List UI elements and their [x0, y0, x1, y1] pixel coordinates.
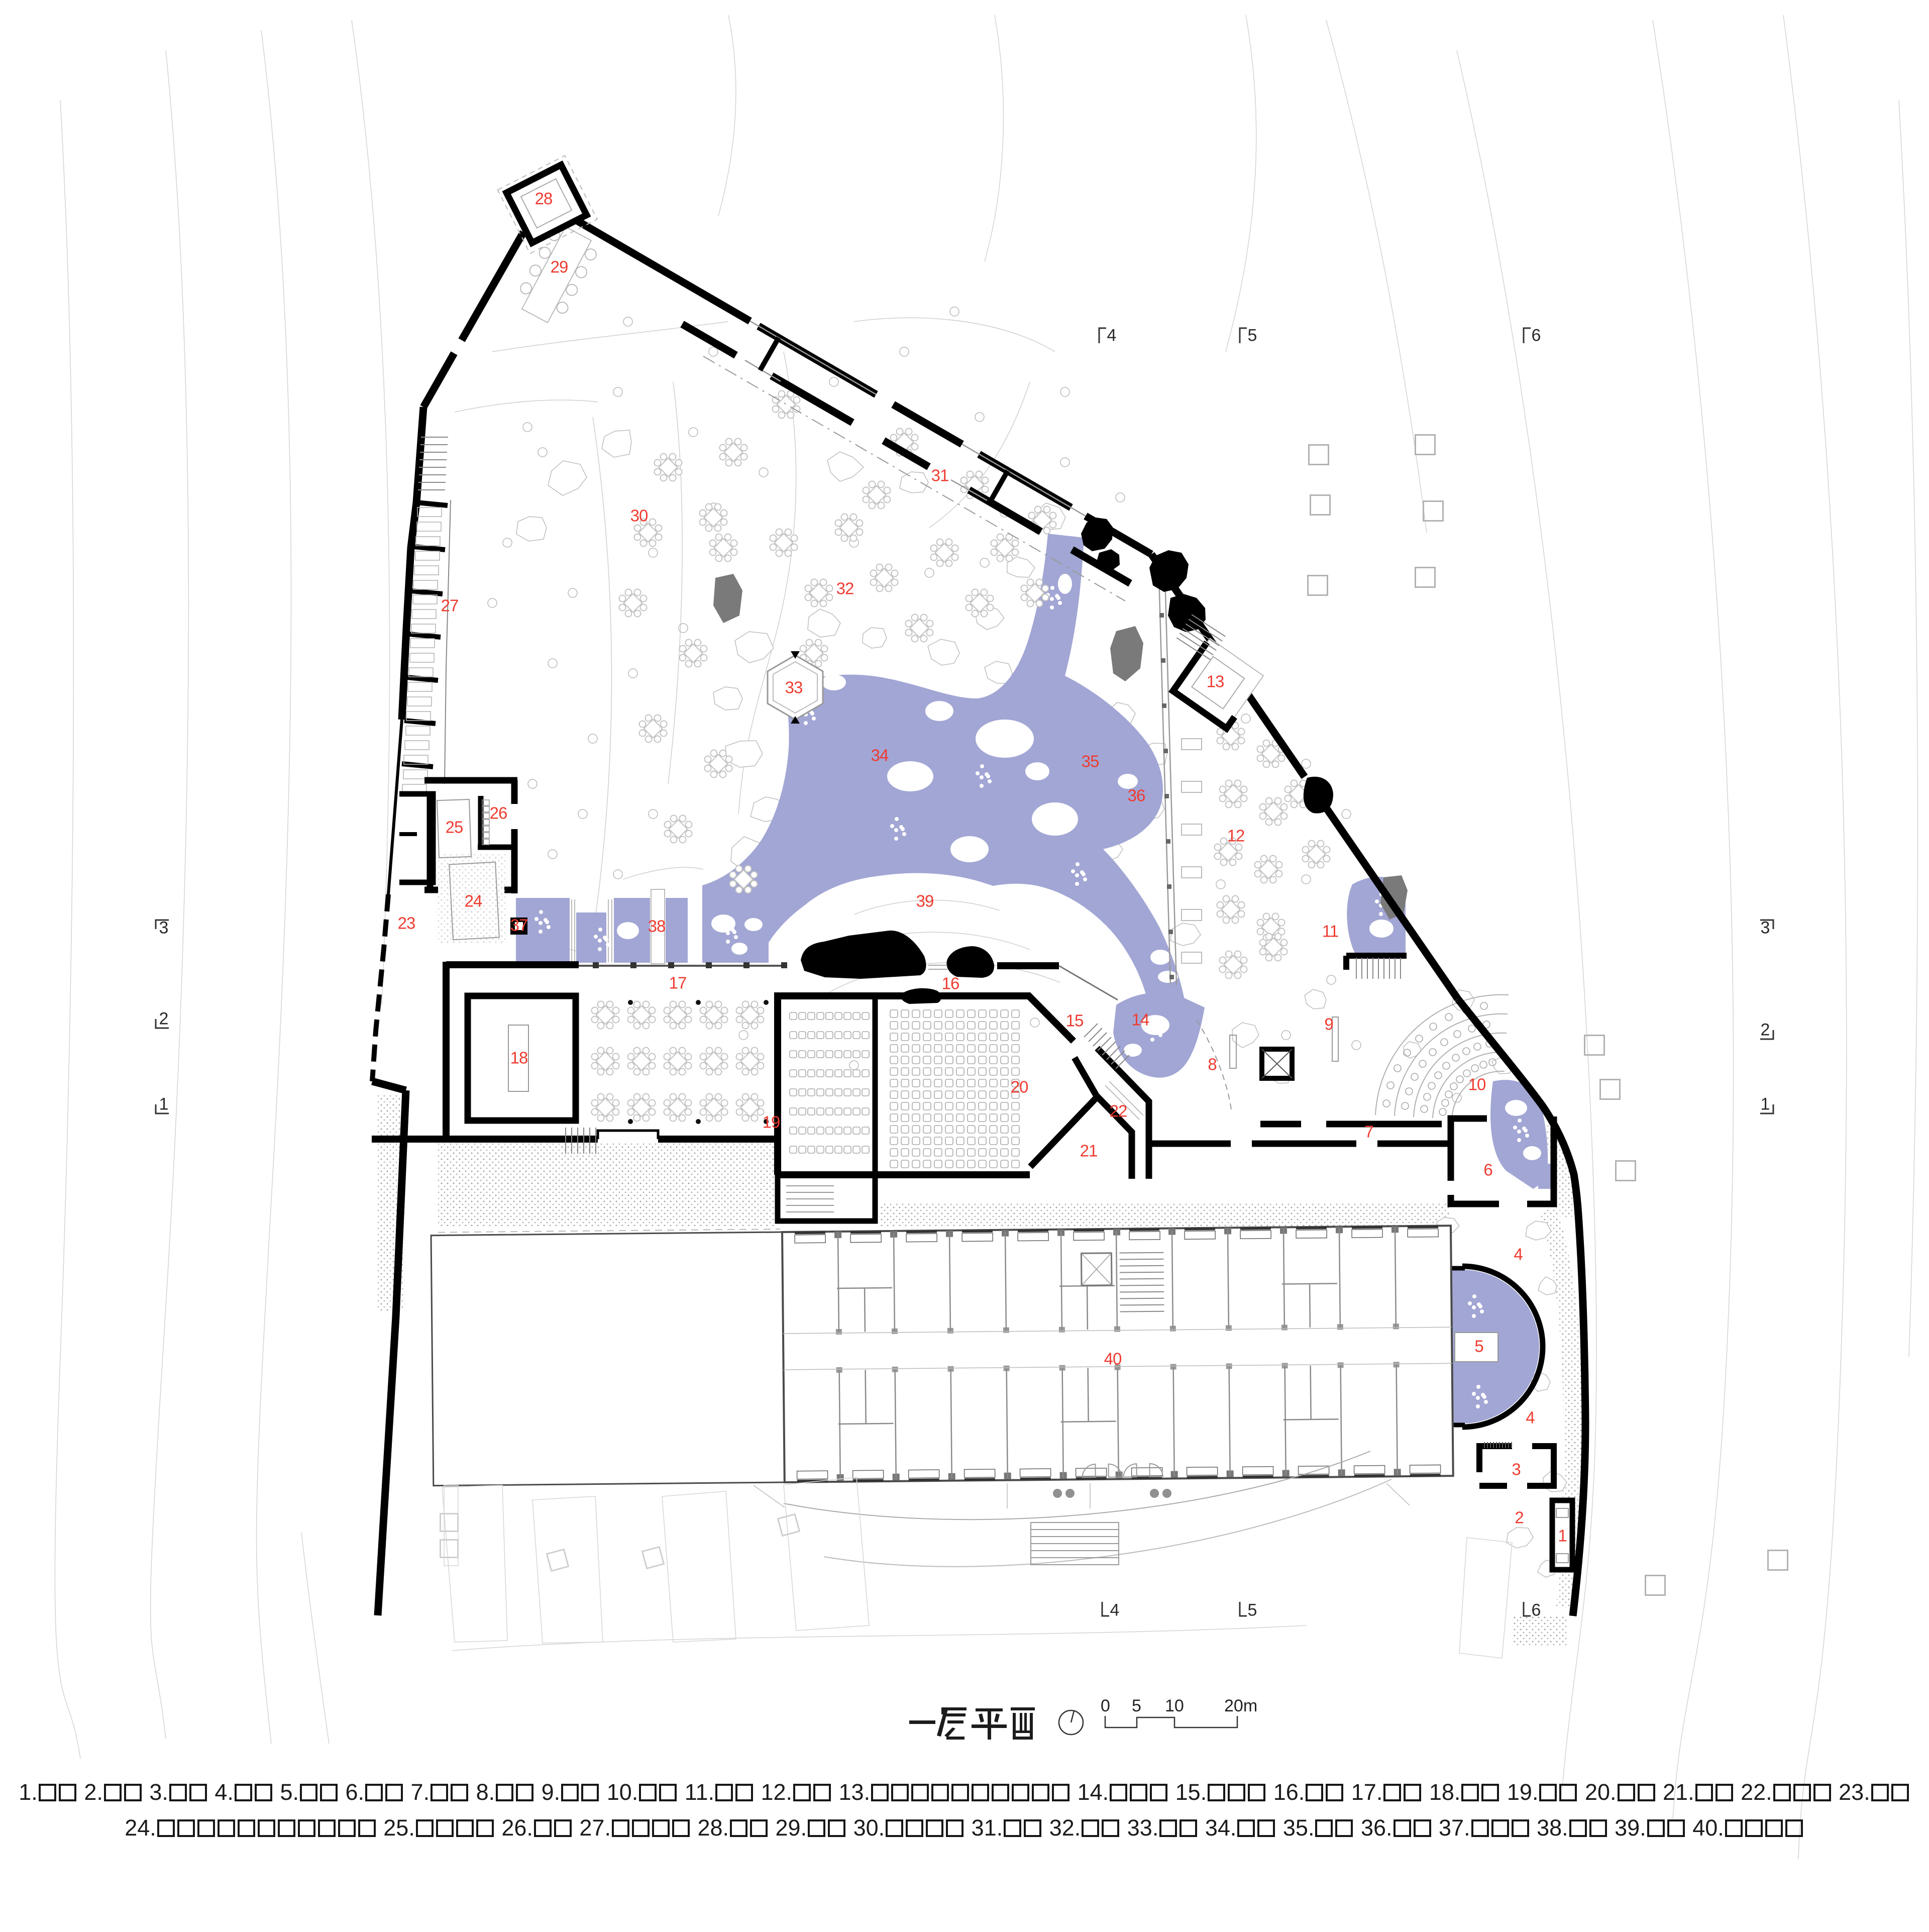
- svg-text:20m: 20m: [1224, 1696, 1257, 1715]
- svg-text:0: 0: [1101, 1696, 1110, 1715]
- svg-text:10: 10: [1165, 1696, 1184, 1715]
- svg-text:5: 5: [1132, 1696, 1141, 1715]
